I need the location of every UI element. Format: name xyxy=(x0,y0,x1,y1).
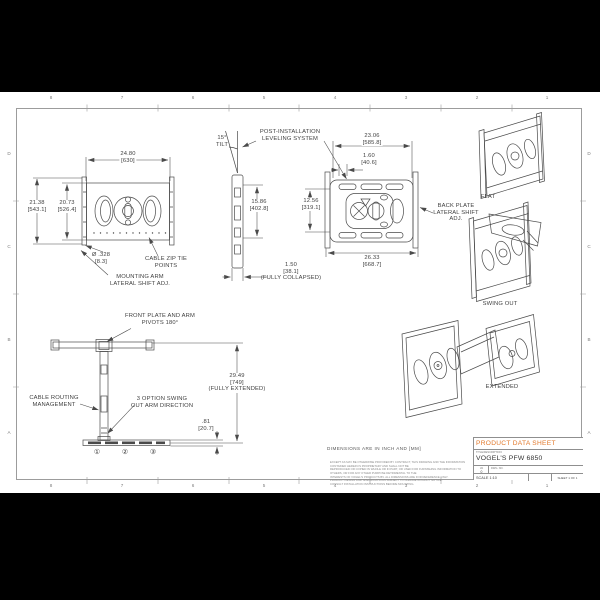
wall-plate-slots xyxy=(88,442,165,445)
grid-col-label: 7 xyxy=(121,95,124,100)
label-cable-zip-tie: CABLE ZIP TIEPOINTS xyxy=(145,256,187,269)
units-note: DIMENSIONS ARE IN INCH AND [MM] xyxy=(327,446,421,451)
border-ticks xyxy=(13,105,586,485)
rev-cell: VA 0 xyxy=(474,466,489,473)
grid-row-label: B xyxy=(7,337,10,342)
dim-front-width: 24.80[630] xyxy=(119,151,136,164)
grid-col-label: 1 xyxy=(546,483,549,488)
dim-side-height: 15.86[402.8] xyxy=(249,199,270,212)
dim-back-width: 23.06[585.8] xyxy=(362,133,383,146)
grid-col-label: 8 xyxy=(50,95,53,100)
arm-top-view xyxy=(51,340,170,446)
grid-col-label: 1 xyxy=(546,95,549,100)
option-1-marker: ① xyxy=(94,448,100,456)
grid-col-label: 5 xyxy=(263,95,266,100)
label-tilt: 15°TILT xyxy=(216,135,228,148)
label-swing-out: SWING OUT xyxy=(483,301,518,308)
dim-front-height-outer: 21.38[543.1] xyxy=(27,200,48,213)
product-name: VOGEL'S PFW 6850 xyxy=(476,454,583,462)
grid-col-label: 5 xyxy=(263,483,266,488)
dim-hole-diameter: Ø .328[8.3] xyxy=(92,252,110,265)
zip-tie-dots xyxy=(93,232,166,233)
grid-row-label: D xyxy=(587,151,590,156)
dim-plate-thickness: .81[20.7] xyxy=(198,419,213,432)
grid-row-label: B xyxy=(587,337,590,342)
option-2-marker: ② xyxy=(122,448,128,456)
label-back-plate-shift: BACK PLATELATERAL SHIFTADJ. xyxy=(433,203,478,223)
dim-fully-extended: 29.49[749](FULLY EXTENDED) xyxy=(208,373,267,393)
grid-col-label: 2 xyxy=(476,95,479,100)
dim-front-height-inner: 20.73[526.4] xyxy=(57,200,78,213)
title-block: PRODUCT DATA SHEET TITLE/DESCRIPTION: VO… xyxy=(473,437,583,480)
drawing-linework xyxy=(0,0,600,600)
grid-col-label: 4 xyxy=(334,95,337,100)
grid-col-label: 8 xyxy=(50,483,53,488)
grid-row-label: A xyxy=(7,430,10,435)
grid-row-label: C xyxy=(7,244,10,249)
grid-row-label: C xyxy=(587,244,590,249)
grid-row-label: D xyxy=(7,151,10,156)
dimension-lines xyxy=(33,141,433,455)
title-block-spacer xyxy=(528,474,551,481)
front-view xyxy=(82,177,174,245)
dwg-no-label: DWG. NO. xyxy=(491,466,583,470)
title-block-header: PRODUCT DATA SHEET xyxy=(474,438,583,450)
back-plate-view xyxy=(325,172,418,248)
grid-col-label: 6 xyxy=(192,95,195,100)
label-pivots-180: FRONT PLATE AND ARMPIVOTS 180° xyxy=(125,313,195,326)
label-post-installation: POST-INSTALLATIONLEVELING SYSTEM xyxy=(260,129,320,142)
label-cable-routing: CABLE ROUTINGMANAGEMENT xyxy=(29,395,78,408)
iso-extended-view xyxy=(402,315,540,418)
label-extended: EXTENDED xyxy=(486,384,519,391)
grid-col-label: 2 xyxy=(476,483,479,488)
dim-back-outer-width: 26.33[668.7] xyxy=(363,255,382,268)
grid-col-label: 7 xyxy=(121,483,124,488)
scale-value: SCALE 1:10 xyxy=(474,476,528,480)
grid-col-label: 3 xyxy=(405,95,408,100)
grid-col-label: 6 xyxy=(192,483,195,488)
label-swing-options: 3 OPTION SWINGOUT ARM DIRECTION xyxy=(131,396,193,409)
option-3-marker: ③ xyxy=(150,448,156,456)
rev-value: 0 xyxy=(475,470,488,474)
iso-flat-view xyxy=(479,113,545,199)
label-flat: FLAT xyxy=(481,194,495,201)
fine-print: EXCEPT AS MAY BE OTHERWISE PROVIDED BY C… xyxy=(330,461,472,486)
dim-back-offset: 1.60[40.6] xyxy=(361,153,376,166)
dim-back-height: 12.56[319.1] xyxy=(301,198,322,211)
grid-row-label: A xyxy=(587,430,590,435)
label-mounting-arm-shift: MOUNTING ARMLATERAL SHIFT ADJ. xyxy=(110,274,170,287)
sheet-number: SHEET 1 OF 1 xyxy=(551,474,583,481)
side-view xyxy=(226,131,244,268)
dim-fully-collapsed: 1.50[38.1](FULLY COLLAPSED) xyxy=(261,262,321,282)
iso-swing-out-view xyxy=(469,202,541,302)
dwg-no-cell: DWG. NO. xyxy=(489,466,583,473)
